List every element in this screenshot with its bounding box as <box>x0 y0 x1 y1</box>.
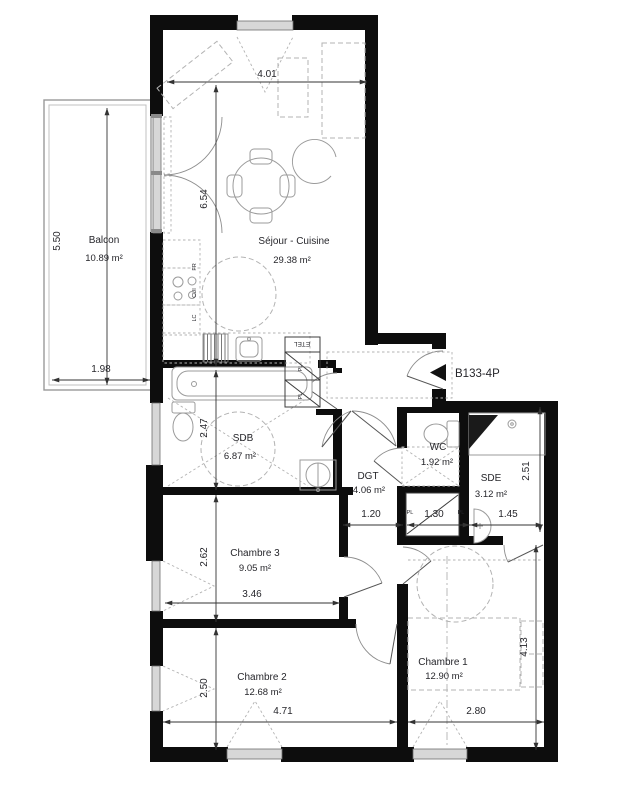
fridge-label: FR <box>192 263 198 270</box>
unit-code: B133-4P <box>455 368 500 380</box>
balcony-door-swing <box>164 117 222 233</box>
room-name: Chambre 1 <box>418 657 468 668</box>
turning-circle <box>417 546 493 622</box>
etel-label: ETEL <box>293 340 310 347</box>
dim-balcon-width: 1.98 <box>52 364 150 380</box>
room-area: 1.92 m² <box>421 457 453 468</box>
dim-sejour-depth: 6.54 <box>199 85 216 366</box>
room-name: Séjour - Cuisine <box>258 236 330 247</box>
armchair <box>292 139 336 183</box>
room-label-dgt: DGT 4.06 m² <box>353 471 385 496</box>
room-area: 12.90 m² <box>425 671 463 682</box>
room-label-chambre3: Chambre 3 9.05 m² <box>230 548 280 574</box>
room-name: Chambre 3 <box>230 548 280 559</box>
entrance-arrow-icon <box>430 364 446 381</box>
dim-label: 1.20 <box>361 509 381 520</box>
dim-label: 1.30 <box>424 509 444 520</box>
window <box>413 749 467 759</box>
room-name: SDE <box>481 473 502 484</box>
room-area: 3.12 m² <box>475 489 507 500</box>
pl-label: PL <box>298 393 304 400</box>
room-label-balcon: Balcon 10.89 m² <box>85 235 123 264</box>
dim-chambre2-width: 4.71 <box>163 706 397 722</box>
dim-label: 1.45 <box>498 509 518 520</box>
room-label-sejour: Séjour - Cuisine 29.38 m² <box>258 236 330 266</box>
dim-label: 4.71 <box>273 706 293 717</box>
dim-label: 5.50 <box>52 231 63 251</box>
dim-sejour-width: 4.01 <box>167 69 367 82</box>
dim-chambre1-depth: 4.13 <box>519 545 536 750</box>
pl-label: PL <box>407 510 414 516</box>
room-label-sde: SDE 3.12 m² <box>475 473 507 500</box>
dining-table <box>227 149 295 223</box>
sde-door-leaf <box>469 415 498 449</box>
chambre2-door <box>356 624 397 664</box>
dim-label: 2.80 <box>466 706 486 717</box>
window <box>227 749 282 759</box>
room-name: SDB <box>233 433 254 444</box>
dim-label: 1.98 <box>91 364 111 375</box>
washing-machine <box>203 334 228 362</box>
room-area: 6.87 m² <box>224 451 256 462</box>
furniture <box>157 41 545 748</box>
room-name: Chambre 2 <box>237 672 287 683</box>
room-name: Balcon <box>89 235 120 246</box>
kitchen-sink <box>236 337 262 361</box>
dim-label: 2.47 <box>199 418 210 438</box>
room-area: 29.38 m² <box>273 255 311 266</box>
room-area: 4.06 m² <box>353 485 385 496</box>
window <box>152 561 160 611</box>
cooker-label: CUI <box>192 288 198 298</box>
room-name: DGT <box>357 471 378 482</box>
bathtub <box>172 367 312 400</box>
room-area: 12.68 m² <box>244 687 282 698</box>
room-label-chambre2: Chambre 2 12.68 m² <box>237 672 287 698</box>
pl-label: PL <box>298 365 304 372</box>
dim-label: 3.46 <box>242 589 262 600</box>
dim-label: 2.62 <box>199 547 210 567</box>
dim-dgt-width: 1.20 <box>343 509 403 525</box>
dim-label: 4.13 <box>519 637 530 657</box>
turning-circle <box>202 257 276 331</box>
room-name: WC <box>430 442 447 453</box>
toilet-sdb <box>172 402 195 441</box>
dim-chambre1-width: 2.80 <box>408 706 544 722</box>
window <box>237 21 293 30</box>
unit-label: B133-4P <box>430 364 500 381</box>
window <box>152 666 160 711</box>
shower <box>469 413 545 455</box>
tv-unit <box>157 41 233 108</box>
dim-label: 2.51 <box>521 461 532 481</box>
room-area: 9.05 m² <box>239 563 271 574</box>
window <box>152 403 160 465</box>
washer-label: LC <box>192 314 198 321</box>
chambre3-door <box>344 557 382 597</box>
dim-label: 2.50 <box>199 678 210 698</box>
dim-chambre3-width: 3.46 <box>165 589 340 603</box>
sofa <box>278 43 365 138</box>
dim-sde-depth: 2.51 <box>521 407 540 532</box>
washbasin-sdb <box>300 460 336 492</box>
dim-balcon-depth: 5.50 <box>52 108 107 385</box>
room-label-chambre1: Chambre 1 12.90 m² <box>418 657 468 682</box>
turning-circle <box>201 412 275 486</box>
floor-plan: 4.01 6.54 5.50 1.98 2.47 2.62 2.50 3.46 <box>0 0 635 800</box>
room-area: 10.89 m² <box>85 253 123 264</box>
chambre1-door-2 <box>504 545 543 562</box>
floor-plan-page: 4.01 6.54 5.50 1.98 2.47 2.62 2.50 3.46 <box>0 0 635 800</box>
dim-label: 6.54 <box>199 189 210 209</box>
dim-label: 4.01 <box>257 69 277 80</box>
pl-label: PL <box>458 510 465 516</box>
